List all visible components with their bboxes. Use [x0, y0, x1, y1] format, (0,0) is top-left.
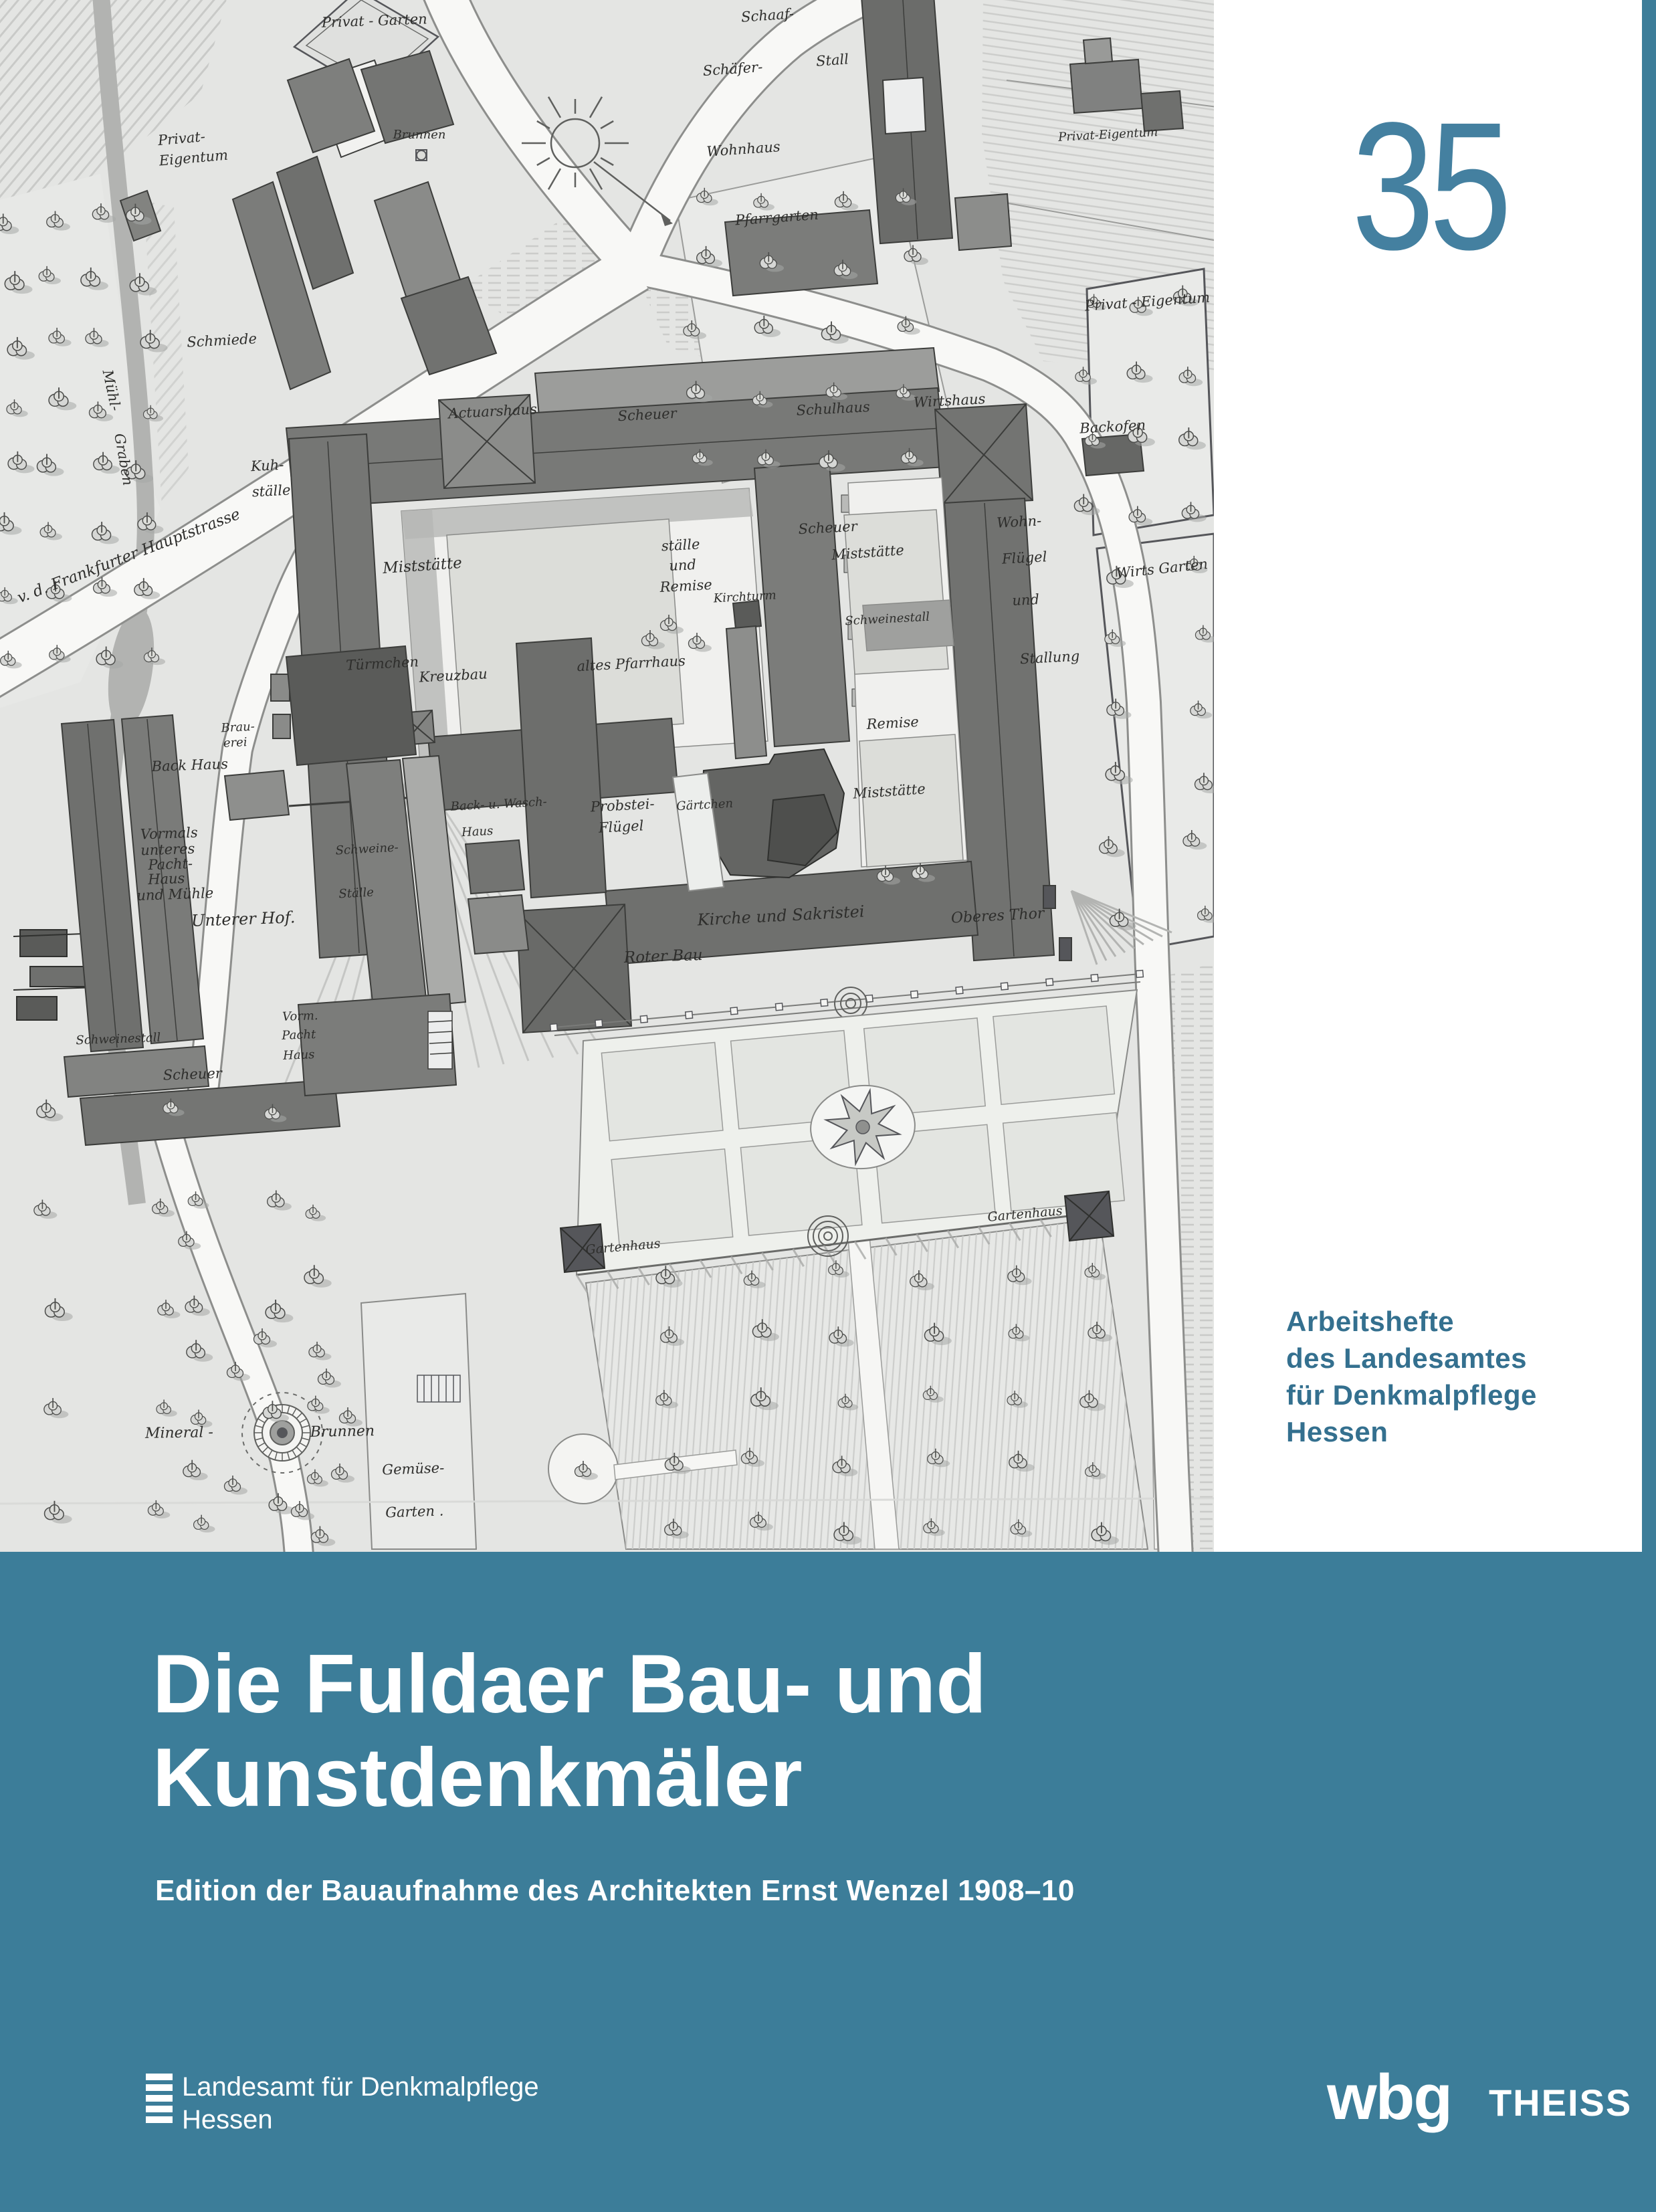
- map-label: Garten .: [385, 1502, 444, 1520]
- theiss-wordmark: THEISS: [1489, 2082, 1632, 2124]
- map-label: Stallung: [1019, 648, 1079, 668]
- map-label: Vormals: [140, 825, 198, 843]
- publisher-name-line: Hessen: [182, 2104, 539, 2136]
- site-plan-svg: Privat - GartenPrivat-EigentumSchmiedeMü…: [0, 0, 1214, 1552]
- map-label: ställe: [661, 536, 700, 555]
- title-line: Die Fuldaer Bau- und: [152, 1637, 987, 1731]
- map-label: Unterer Hof.: [191, 908, 296, 930]
- balustrade-post: [730, 1007, 738, 1015]
- publisher-name: Landesamt für Denkmalpflege Hessen: [182, 2071, 539, 2136]
- map-label: Haus: [147, 870, 185, 888]
- garden-grid-glyph: [417, 1375, 460, 1402]
- book-subtitle: Edition der Bauaufnahme des Architekten …: [155, 1874, 1075, 1908]
- series-line: des Landesamtes: [1286, 1340, 1634, 1377]
- map-label: Kuh-: [249, 457, 284, 475]
- map-label: Scheuer: [617, 405, 678, 425]
- series-line: Hessen: [1286, 1413, 1634, 1450]
- balustrade-post: [1001, 983, 1008, 990]
- map-label: Remise: [865, 714, 919, 732]
- map-label: und: [1012, 591, 1040, 609]
- miststaette-east-upper: [844, 510, 948, 674]
- map-label: Brau-: [220, 720, 255, 736]
- map-label: Pacht: [281, 1027, 316, 1043]
- map-label: erei: [223, 735, 247, 750]
- balustrade-post: [911, 991, 918, 998]
- map-label: Stall: [815, 51, 849, 69]
- series-title: Arbeitshefte des Landesamtes für Denkmal…: [1286, 1303, 1634, 1450]
- map-label: Probstei-: [589, 796, 655, 815]
- publisher-logo-wbg-theiss: wbg THEISS: [1327, 2066, 1632, 2130]
- balustrade-post: [686, 1011, 693, 1019]
- title-band: Die Fuldaer Bau- und Kunstdenkmäler Edit…: [0, 1552, 1656, 2212]
- map-label: Gemüse-: [382, 1460, 445, 1478]
- bar: [146, 2106, 173, 2112]
- map-label: und Mühle: [136, 885, 214, 904]
- miststaette-east-lower: [859, 734, 963, 867]
- series-line: für Denkmalpflege: [1286, 1377, 1634, 1413]
- balustrade-post: [550, 1024, 558, 1031]
- balustrade-post: [776, 1003, 783, 1011]
- map-label: Wohn-: [997, 512, 1042, 530]
- map-label: Schweinestall: [76, 1031, 161, 1047]
- map-label: Vorm.: [282, 1009, 318, 1024]
- bar: [146, 2084, 173, 2091]
- map-label: Gärtchen: [676, 797, 734, 813]
- balustrade-post: [595, 1019, 603, 1027]
- bar: [146, 2116, 173, 2123]
- balustrade-post: [1136, 971, 1144, 978]
- map-label: Brunnen: [393, 128, 446, 142]
- probstei-wing: [516, 638, 606, 898]
- book-cover: Privat - GartenPrivat-EigentumSchmiedeMü…: [0, 0, 1656, 2212]
- backhaus-building: [225, 771, 289, 820]
- map-label: ställe: [251, 482, 291, 500]
- stairs-glyph: [428, 1011, 454, 1069]
- map-label: Brunnen: [309, 1423, 375, 1441]
- map-label: Ställe: [338, 886, 374, 902]
- kirchturm: [733, 601, 761, 629]
- map-label: Flügel: [1001, 548, 1047, 567]
- bar: [146, 2074, 173, 2080]
- map-label: Haus: [282, 1047, 315, 1063]
- series-line: Arbeitshefte: [1286, 1303, 1634, 1340]
- title-line: Kunstdenkmäler: [152, 1731, 987, 1825]
- well-icon: [416, 150, 427, 161]
- garden-bed: [993, 1006, 1115, 1104]
- site-plan-illustration: Privat - GartenPrivat-EigentumSchmiedeMü…: [0, 0, 1214, 1552]
- publisher-name-line: Landesamt für Denkmalpflege: [182, 2071, 539, 2104]
- balustrade-post: [821, 999, 828, 1007]
- balustrade-post: [1091, 975, 1098, 982]
- map-label: Remise: [659, 577, 712, 595]
- balustrade-post: [640, 1015, 647, 1023]
- publisher-logo-landesamt: Landesamt für Denkmalpflege Hessen: [146, 2071, 539, 2136]
- balustrade-post: [1046, 979, 1053, 986]
- bar: [146, 2095, 173, 2102]
- map-label: Scheuer: [163, 1065, 223, 1083]
- map-label: Scheuer: [798, 518, 859, 538]
- bars-icon: [146, 2074, 173, 2136]
- issue-number: 35: [1352, 95, 1507, 277]
- balustrade-post: [956, 987, 963, 994]
- map-label: Mineral -: [144, 1424, 213, 1442]
- garden-bed: [611, 1149, 732, 1247]
- wbg-wordmark: wbg: [1327, 2066, 1451, 2130]
- map-label: und: [669, 557, 697, 574]
- map-label: Roter Bau: [623, 946, 703, 967]
- edge-accent-stripe: [1642, 0, 1656, 1552]
- map-label: Haus: [461, 824, 494, 839]
- map-label: Flügel: [597, 817, 644, 836]
- book-title: Die Fuldaer Bau- und Kunstdenkmäler: [152, 1637, 987, 1825]
- garden-bed: [601, 1043, 723, 1141]
- map-label: Back Haus: [150, 756, 228, 775]
- theiss-wordmark-wrap: THEISS: [1457, 2084, 1632, 2122]
